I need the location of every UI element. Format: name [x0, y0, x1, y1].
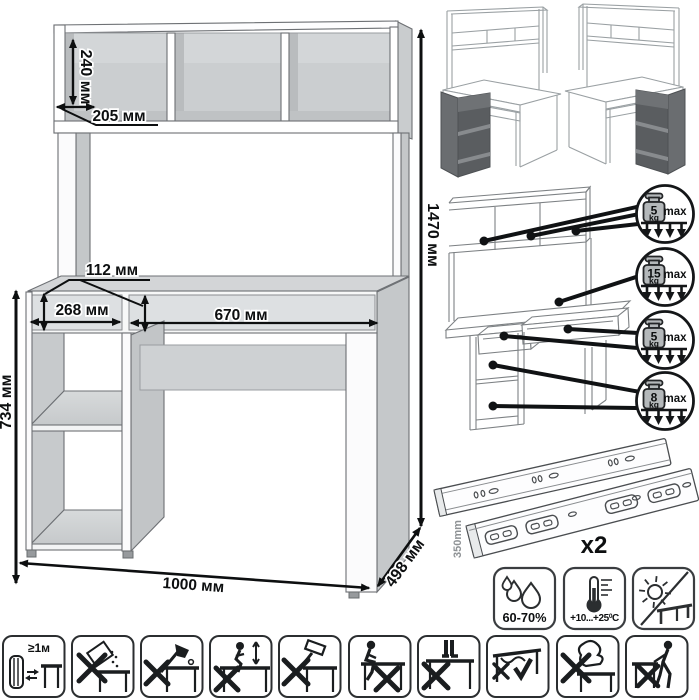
svg-text:205 мм: 205 мм [92, 108, 145, 125]
svg-text:kg: kg [649, 276, 659, 286]
svg-text:112 мм: 112 мм [86, 262, 138, 279]
svg-text:kg: kg [649, 339, 659, 349]
svg-text:1000 мм: 1000 мм [162, 575, 225, 596]
svg-text:≥1м: ≥1м [28, 641, 50, 655]
svg-text:268 мм: 268 мм [55, 302, 108, 319]
svg-text:240 мм: 240 мм [77, 50, 94, 105]
svg-text:60-70%: 60-70% [502, 610, 547, 625]
svg-text:734 мм: 734 мм [0, 375, 15, 430]
svg-text:max: max [663, 393, 687, 405]
svg-text:max: max [663, 269, 687, 281]
svg-text:670 мм: 670 мм [214, 307, 267, 324]
svg-text:kg: kg [649, 400, 659, 410]
svg-text:x2: x2 [581, 532, 608, 559]
svg-text:kg: kg [649, 213, 659, 223]
svg-text:1470 мм: 1470 мм [424, 203, 441, 267]
svg-text:max: max [663, 332, 687, 344]
svg-text:350mm: 350mm [452, 520, 464, 558]
svg-text:max: max [663, 206, 687, 218]
svg-text:+10...+250C: +10...+250C [570, 613, 619, 624]
